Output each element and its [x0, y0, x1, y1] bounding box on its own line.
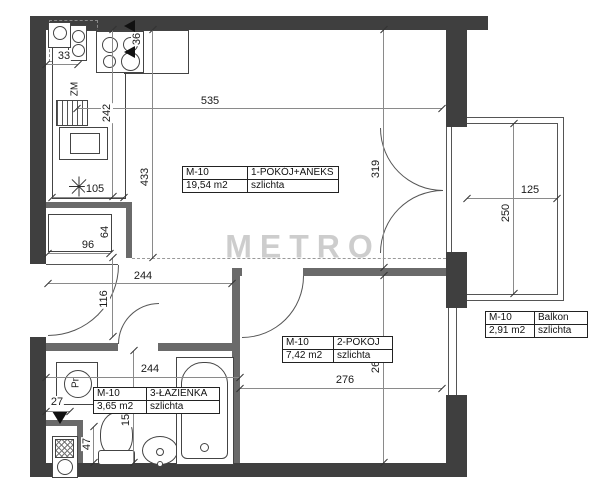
- dim-36: 36: [131, 32, 143, 46]
- oven: [59, 127, 108, 160]
- floor-plan: METRO ZM: [0, 0, 612, 500]
- room-name: 3-ŁAZIENKA: [147, 388, 219, 400]
- balcony-rail-bottom-outer: [467, 300, 564, 301]
- balcony-door-arc-bottom: [380, 190, 443, 253]
- dim-line-33: [46, 64, 78, 65]
- room-floor: szlichta: [535, 325, 587, 337]
- dim-47: 47: [81, 437, 93, 451]
- room-area: 3,65 m2: [94, 401, 147, 413]
- balcony-door-glass: [451, 127, 452, 252]
- room-unit: M-10: [283, 337, 334, 349]
- wall-right-pillar-top: [446, 30, 467, 127]
- balcony-rail-top-outer: [467, 117, 564, 118]
- dim-line-125: [467, 198, 557, 199]
- oven-door-icon: [70, 133, 100, 154]
- dishwasher-label: ZM: [70, 81, 81, 97]
- room-table-bath: M-10 3-ŁAZIENKA 3,65 m2 szlichta: [93, 387, 220, 414]
- room-unit: M-10: [94, 388, 147, 400]
- burner-icon: [103, 55, 116, 68]
- room-table-room2: M-10 2-POKÓJ 7,42 m2 szlichta: [282, 336, 393, 363]
- room-table-main: M-10 1-POKÓJ+ANEKS 19,54 m2 szlichta: [182, 166, 339, 193]
- dim-96: 96: [81, 239, 95, 251]
- dim-276: 276: [335, 374, 355, 386]
- room-name: 1-POKÓJ+ANEKS: [248, 167, 338, 179]
- dim-line-244-hall: [48, 283, 232, 284]
- dim-250: 250: [500, 203, 512, 223]
- dim-535: 535: [200, 95, 220, 107]
- room2-window-outer: [448, 308, 449, 395]
- sink-bowl-icon: [72, 44, 85, 57]
- balcony-door-frame: [446, 127, 447, 252]
- room-floor: szlichta: [334, 350, 392, 362]
- dim-line-319: [383, 30, 384, 268]
- toilet-tank: [98, 450, 135, 465]
- wall-bottom: [30, 463, 467, 477]
- dim-line-276: [240, 388, 442, 389]
- watermark: METRO: [225, 229, 381, 266]
- wall-top: [30, 16, 488, 30]
- wall-hall-bath-right: [158, 343, 232, 351]
- balcony-door-arc-top: [380, 128, 443, 191]
- room-floor: szlichta: [147, 401, 219, 413]
- vent-shaft-icon: [52, 411, 68, 424]
- dishwasher: [56, 100, 88, 126]
- burner-icon: [102, 37, 118, 53]
- dim-line-116: [112, 258, 113, 337]
- shaft-hatch-icon: [55, 439, 74, 458]
- room-name: Balkon: [535, 312, 587, 324]
- wall-right-pillar-bottom: [446, 395, 467, 463]
- washer-label: Pr: [71, 377, 82, 389]
- dim-27: 27: [50, 396, 64, 408]
- dim-125: 125: [520, 184, 540, 196]
- room-area: 7,42 m2: [283, 350, 334, 362]
- dim-244-hall: 244: [133, 270, 153, 282]
- dim-line-535: [77, 108, 442, 109]
- basin-tap-icon: [157, 461, 163, 467]
- room-floor: szlichta: [248, 180, 338, 192]
- dim-319: 319: [370, 159, 382, 179]
- room2-door-arc: [242, 276, 304, 338]
- dim-arrow-icon: [124, 20, 135, 32]
- tub-drain-icon: [200, 443, 209, 452]
- basin-drain-icon: [156, 448, 164, 456]
- dim-line-96: [48, 253, 110, 254]
- balcony-rail-right-outer: [563, 117, 564, 301]
- kitchen-corner-unit: [48, 22, 71, 48]
- dim-116: 116: [98, 289, 110, 309]
- room-unit: M-10: [183, 167, 248, 179]
- wall-hall-bath-left: [46, 343, 118, 351]
- dim-line-47: [93, 427, 94, 463]
- room-name: 2-POKÓJ: [334, 337, 392, 349]
- dim-242: 242: [101, 103, 113, 123]
- room-unit: M-10: [486, 312, 535, 324]
- dim-arrow-icon: [124, 46, 135, 58]
- room2-window-inner: [456, 308, 457, 395]
- balcony-rail-right-inner: [557, 123, 558, 295]
- room-area: 19,54 m2: [183, 180, 248, 192]
- tap-icon: [53, 26, 67, 40]
- wall-niche-top: [46, 202, 132, 208]
- utility-shaft: [52, 436, 78, 478]
- dim-105: 105: [85, 183, 105, 195]
- wall-niche-side: [126, 202, 132, 258]
- dim-line-105: [52, 197, 124, 198]
- wall-left-lower: [30, 337, 46, 477]
- wall-left-upper: [30, 16, 46, 264]
- wall-right-pillar-mid: [446, 252, 467, 308]
- ceiling-beam-dashed: [132, 258, 446, 259]
- dim-line-250: [513, 124, 514, 294]
- dim-line-268: [383, 276, 384, 463]
- wall-main-room2: [303, 268, 446, 276]
- shaft-valve-icon: [57, 459, 73, 475]
- dim-line-244-bath: [46, 377, 240, 378]
- dim-line-27: [46, 411, 70, 412]
- dim-64: 64: [99, 225, 111, 239]
- dim-33: 33: [57, 50, 71, 62]
- dim-433: 433: [139, 167, 151, 187]
- bathroom-door-arc: [118, 303, 159, 344]
- room-area: 2,91 m2: [486, 325, 535, 337]
- dim-line-433: [152, 30, 153, 258]
- dim-244-bath: 244: [140, 363, 160, 375]
- room-table-balcony: M-10 Balkon 2,91 m2 szlichta: [485, 311, 588, 338]
- sink-bowl-icon: [72, 30, 85, 43]
